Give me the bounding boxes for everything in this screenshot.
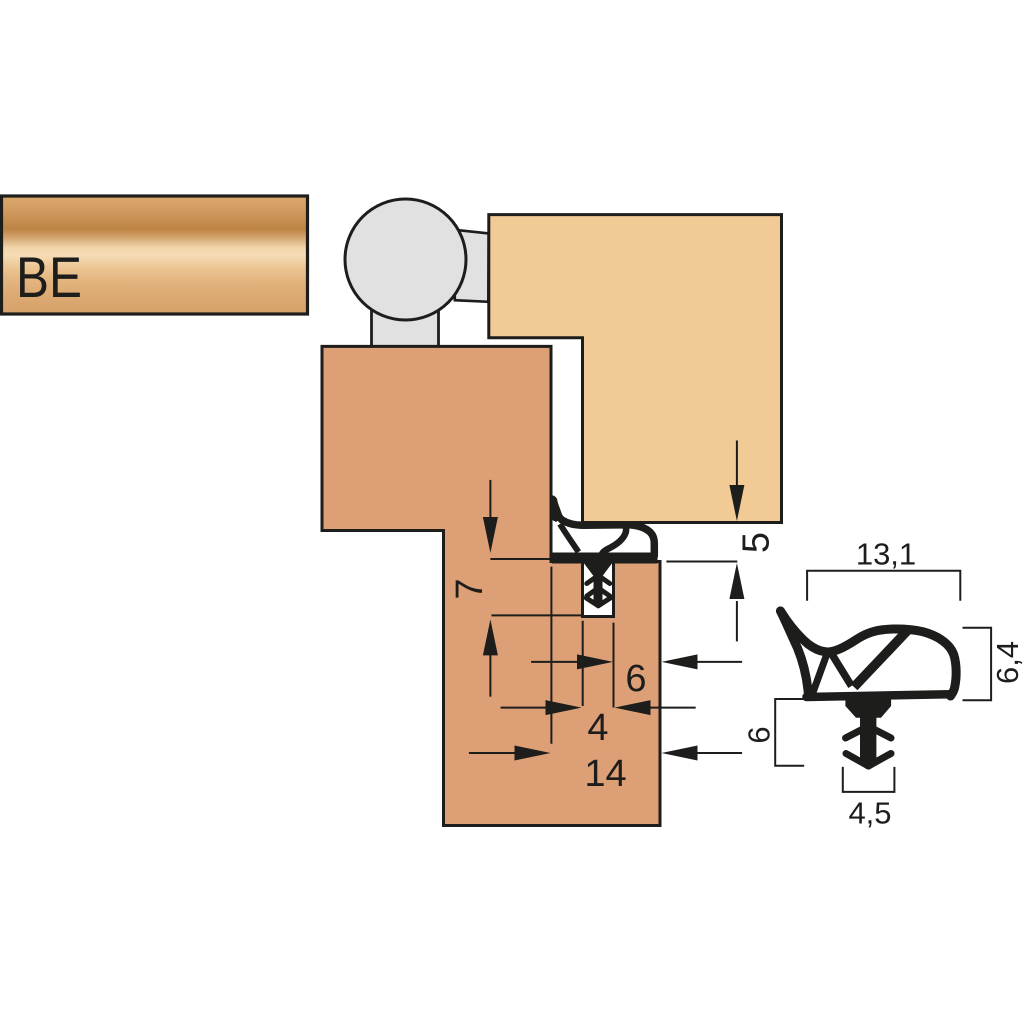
svg-text:4,5: 4,5: [848, 796, 891, 831]
svg-text:BE: BE: [16, 246, 82, 310]
svg-text:7: 7: [449, 578, 491, 599]
svg-text:14: 14: [584, 753, 626, 795]
svg-text:6: 6: [742, 726, 777, 743]
svg-text:13,1: 13,1: [856, 537, 916, 572]
svg-text:4: 4: [587, 707, 608, 749]
svg-text:6: 6: [625, 658, 646, 700]
svg-text:6,4: 6,4: [990, 641, 1024, 684]
svg-text:5: 5: [736, 532, 778, 553]
